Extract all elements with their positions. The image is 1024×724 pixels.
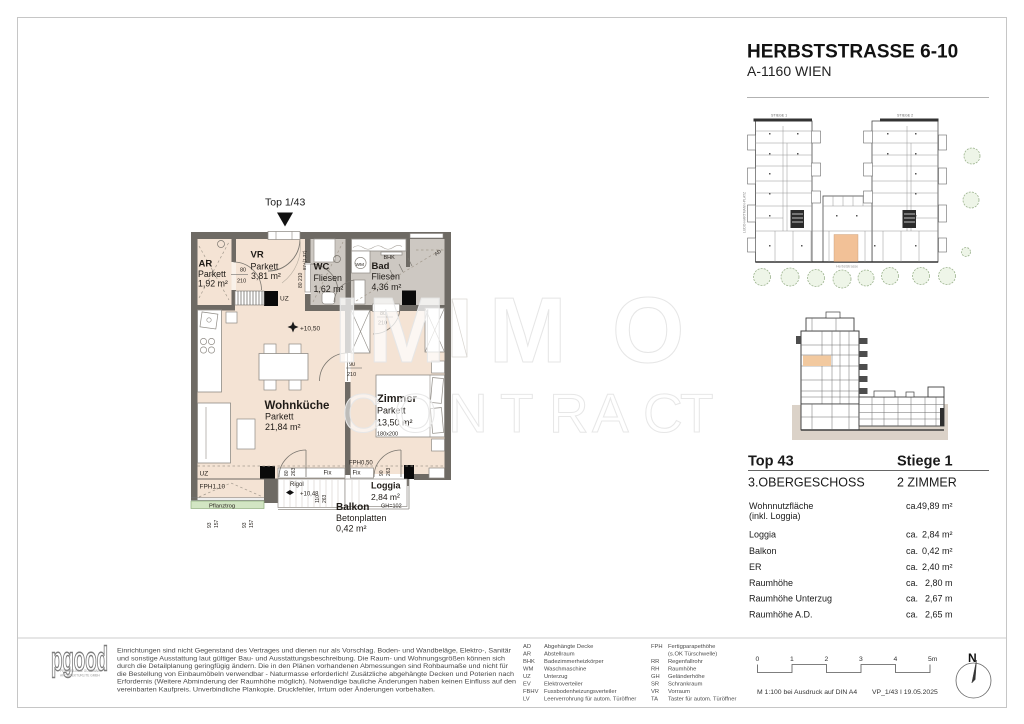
svg-text:STIEGE 1: STIEGE 1 xyxy=(771,114,787,118)
svg-text:Waschmaschine: Waschmaschine xyxy=(544,667,586,673)
svg-text:LUDO-HARTMANN-PLATZ: LUDO-HARTMANN-PLATZ xyxy=(743,192,747,233)
svg-text:93: 93 xyxy=(242,522,248,528)
svg-text:2,84 m²: 2,84 m² xyxy=(371,492,400,502)
svg-text:Top 43: Top 43 xyxy=(748,454,794,470)
svg-text:EV: EV xyxy=(523,682,531,688)
svg-text:Raumhöhe: Raumhöhe xyxy=(668,667,696,673)
svg-text:210: 210 xyxy=(237,279,246,285)
svg-text:Raumhöhe: Raumhöhe xyxy=(749,578,793,588)
svg-text:Geländerhöhe: Geländerhöhe xyxy=(668,674,705,680)
svg-text:Abstellraum: Abstellraum xyxy=(544,652,575,658)
svg-text:durch die Detailplanung gering: durch die Detailplanung geringfügig ände… xyxy=(117,663,509,670)
svg-text:263: 263 xyxy=(386,467,392,476)
svg-text:ca.: ca. xyxy=(906,578,918,588)
svg-text:Fussbodenheizungsverteiler: Fussbodenheizungsverteiler xyxy=(544,689,617,695)
svg-text:Raumhöhe A.D.: Raumhöhe A.D. xyxy=(749,610,813,620)
svg-text:0: 0 xyxy=(756,656,760,663)
svg-text:A-1160 WIEN: A-1160 WIEN xyxy=(747,63,832,79)
svg-text:80 210: 80 210 xyxy=(298,272,304,288)
svg-text:UZ: UZ xyxy=(280,296,289,303)
svg-text:Parkett: Parkett xyxy=(265,412,294,422)
svg-text:Taster für autom. Türöffner: Taster für autom. Türöffner xyxy=(668,697,736,703)
svg-text:263: 263 xyxy=(322,494,328,503)
svg-text:FPH: FPH xyxy=(651,644,663,650)
svg-text:AR: AR xyxy=(523,652,531,658)
svg-text:ca.: ca. xyxy=(906,610,918,620)
svg-text:2,84 m²: 2,84 m² xyxy=(922,530,953,540)
svg-text:2,67 m: 2,67 m xyxy=(925,594,953,604)
svg-text:Rigol: Rigol xyxy=(290,482,304,488)
svg-text:93: 93 xyxy=(207,522,213,528)
svg-text:Fertigparapethöhe: Fertigparapethöhe xyxy=(668,644,715,650)
svg-text:GH: GH xyxy=(651,674,660,680)
svg-text:Balkon: Balkon xyxy=(749,546,777,556)
svg-text:Loggia: Loggia xyxy=(371,481,401,491)
svg-text:WM: WM xyxy=(523,667,533,673)
svg-text:Abgehängte Decke: Abgehängte Decke xyxy=(544,644,593,650)
svg-text:2 ZIMMER: 2 ZIMMER xyxy=(897,476,957,490)
svg-text:PERSONLICHE GOEDNAIS: PERSONLICHE GOEDNAIS xyxy=(60,669,101,673)
svg-text:die Bestellung von Einbaumöbel: die Bestellung von Einbaumöbeln verwendb… xyxy=(117,671,514,678)
svg-text:0,42 m²: 0,42 m² xyxy=(336,524,367,534)
svg-text:Unterzug: Unterzug xyxy=(544,674,568,680)
svg-text:UZ: UZ xyxy=(200,471,209,478)
svg-text:Parkett: Parkett xyxy=(198,269,226,279)
svg-text:Badezimmerheizkörper: Badezimmerheizkörper xyxy=(544,659,604,665)
svg-text:ARCHITEKTURLITE GMBH: ARCHITEKTURLITE GMBH xyxy=(60,674,101,678)
svg-text:AR: AR xyxy=(199,259,213,270)
svg-text:STIEGE 2: STIEGE 2 xyxy=(897,114,913,118)
svg-text:110: 110 xyxy=(315,495,321,503)
svg-text:WC: WC xyxy=(314,262,330,273)
svg-text:BHK: BHK xyxy=(384,255,396,261)
svg-text:UZ: UZ xyxy=(523,674,531,680)
svg-text:87+(1,37): 87+(1,37) xyxy=(302,250,307,270)
svg-text:Loggia: Loggia xyxy=(749,530,776,540)
svg-text:Regenfallrohr: Regenfallrohr xyxy=(668,659,703,665)
svg-text:1,92 m²: 1,92 m² xyxy=(198,279,228,289)
svg-text:FPH0,50: FPH0,50 xyxy=(349,461,373,467)
svg-text:IMMO: IMMO xyxy=(334,278,684,382)
svg-text:ca.: ca. xyxy=(906,562,918,572)
svg-text:ER: ER xyxy=(749,562,762,572)
svg-text:Einrichtungen sind nicht Gegen: Einrichtungen sind nicht Gegenstand des … xyxy=(117,648,512,655)
svg-text:ca.: ca. xyxy=(906,546,918,556)
svg-text:N: N xyxy=(968,651,977,665)
svg-text:HERBSTSTRASSE 6-10: HERBSTSTRASSE 6-10 xyxy=(747,42,958,63)
svg-text:49,89 m²: 49,89 m² xyxy=(917,501,953,511)
svg-text:Fix: Fix xyxy=(353,471,361,477)
svg-text:FBHV: FBHV xyxy=(523,689,539,695)
svg-text:Vorraum: Vorraum xyxy=(668,689,690,695)
svg-text:+10,50: +10,50 xyxy=(300,326,320,333)
svg-text:3.OBERGESCHOSS: 3.OBERGESCHOSS xyxy=(748,476,865,490)
svg-text:VP_1/43 I 19.05.2025: VP_1/43 I 19.05.2025 xyxy=(872,689,938,696)
svg-text:0,42 m²: 0,42 m² xyxy=(922,546,953,556)
svg-text:WM: WM xyxy=(356,262,365,268)
svg-text:80: 80 xyxy=(240,268,246,274)
svg-text:Top 1/43: Top 1/43 xyxy=(265,197,305,209)
svg-text:2: 2 xyxy=(825,656,829,663)
svg-text:Fix: Fix xyxy=(324,471,332,477)
svg-text:Betonplatten: Betonplatten xyxy=(336,513,387,523)
svg-text:M 1:100 bei Ausdruck auf DIN A: M 1:100 bei Ausdruck auf DIN A4 xyxy=(757,689,857,696)
svg-text:Schrankraum: Schrankraum xyxy=(668,682,703,688)
svg-text:RH: RH xyxy=(651,667,659,673)
svg-text:Parkett: Parkett xyxy=(251,262,279,272)
svg-text:5m: 5m xyxy=(928,656,938,663)
svg-text:21,84 m²: 21,84 m² xyxy=(265,422,301,432)
svg-text:Pflanztrog: Pflanztrog xyxy=(209,503,235,509)
svg-text:ca.: ca. xyxy=(906,530,918,540)
svg-text:157: 157 xyxy=(214,519,220,528)
svg-text:(s.OK Türschwelle): (s.OK Türschwelle) xyxy=(668,652,717,658)
svg-text:VR: VR xyxy=(651,689,659,695)
svg-text:Erfordernis (Weitere Abminderu: Erfordernis (Weitere Abminderung der Rau… xyxy=(117,678,517,686)
svg-text:Raumhöhe Unterzug: Raumhöhe Unterzug xyxy=(749,594,832,604)
svg-text:1: 1 xyxy=(790,656,794,663)
svg-text:Stiege 1: Stiege 1 xyxy=(897,454,953,470)
svg-text:Herbststrasse: Herbststrasse xyxy=(836,265,858,269)
svg-text:SR: SR xyxy=(651,682,659,688)
svg-text:90: 90 xyxy=(379,470,385,476)
svg-text:Elektroverteiler: Elektroverteiler xyxy=(544,682,583,688)
svg-text:RR: RR xyxy=(651,659,659,665)
svg-text:4: 4 xyxy=(894,656,898,663)
svg-text:3,81 m²: 3,81 m² xyxy=(251,271,281,281)
svg-text:vereinbarten Kaufpreis. Unverb: vereinbarten Kaufpreis. Unverbindliche P… xyxy=(117,686,435,694)
svg-text:CONTRACT: CONTRACT xyxy=(342,382,714,444)
svg-text:FPH1,10: FPH1,10 xyxy=(200,484,226,491)
svg-text:3: 3 xyxy=(859,656,863,663)
svg-text:157: 157 xyxy=(249,519,255,528)
svg-text:2,40 m²: 2,40 m² xyxy=(922,562,953,572)
svg-text:AD: AD xyxy=(523,644,531,650)
svg-text:LV: LV xyxy=(523,697,530,703)
svg-text:GH=102: GH=102 xyxy=(381,504,402,510)
svg-text:Leerverrohrung für autom. Türö: Leerverrohrung für autom. Türöffner xyxy=(544,697,636,703)
svg-text:BHK: BHK xyxy=(523,659,535,665)
svg-text:Bad: Bad xyxy=(372,261,390,272)
svg-text:2,65 m: 2,65 m xyxy=(925,610,953,620)
svg-text:80: 80 xyxy=(284,470,290,476)
svg-text:VR: VR xyxy=(251,250,264,261)
svg-text:(inkl. Loggia): (inkl. Loggia) xyxy=(749,511,801,521)
svg-text:263: 263 xyxy=(291,467,297,476)
svg-text:ca.: ca. xyxy=(906,594,918,604)
svg-text:2,80 m: 2,80 m xyxy=(925,578,953,588)
svg-text:Balkon: Balkon xyxy=(336,502,369,513)
svg-text:TA: TA xyxy=(651,697,658,703)
svg-text:Wohnküche: Wohnküche xyxy=(265,400,330,412)
svg-text:Wohnnutzfläche: Wohnnutzfläche xyxy=(749,501,813,511)
svg-text:und sonstige Ausstattung laut: und sonstige Ausstattung laut gültiger B… xyxy=(117,655,505,662)
